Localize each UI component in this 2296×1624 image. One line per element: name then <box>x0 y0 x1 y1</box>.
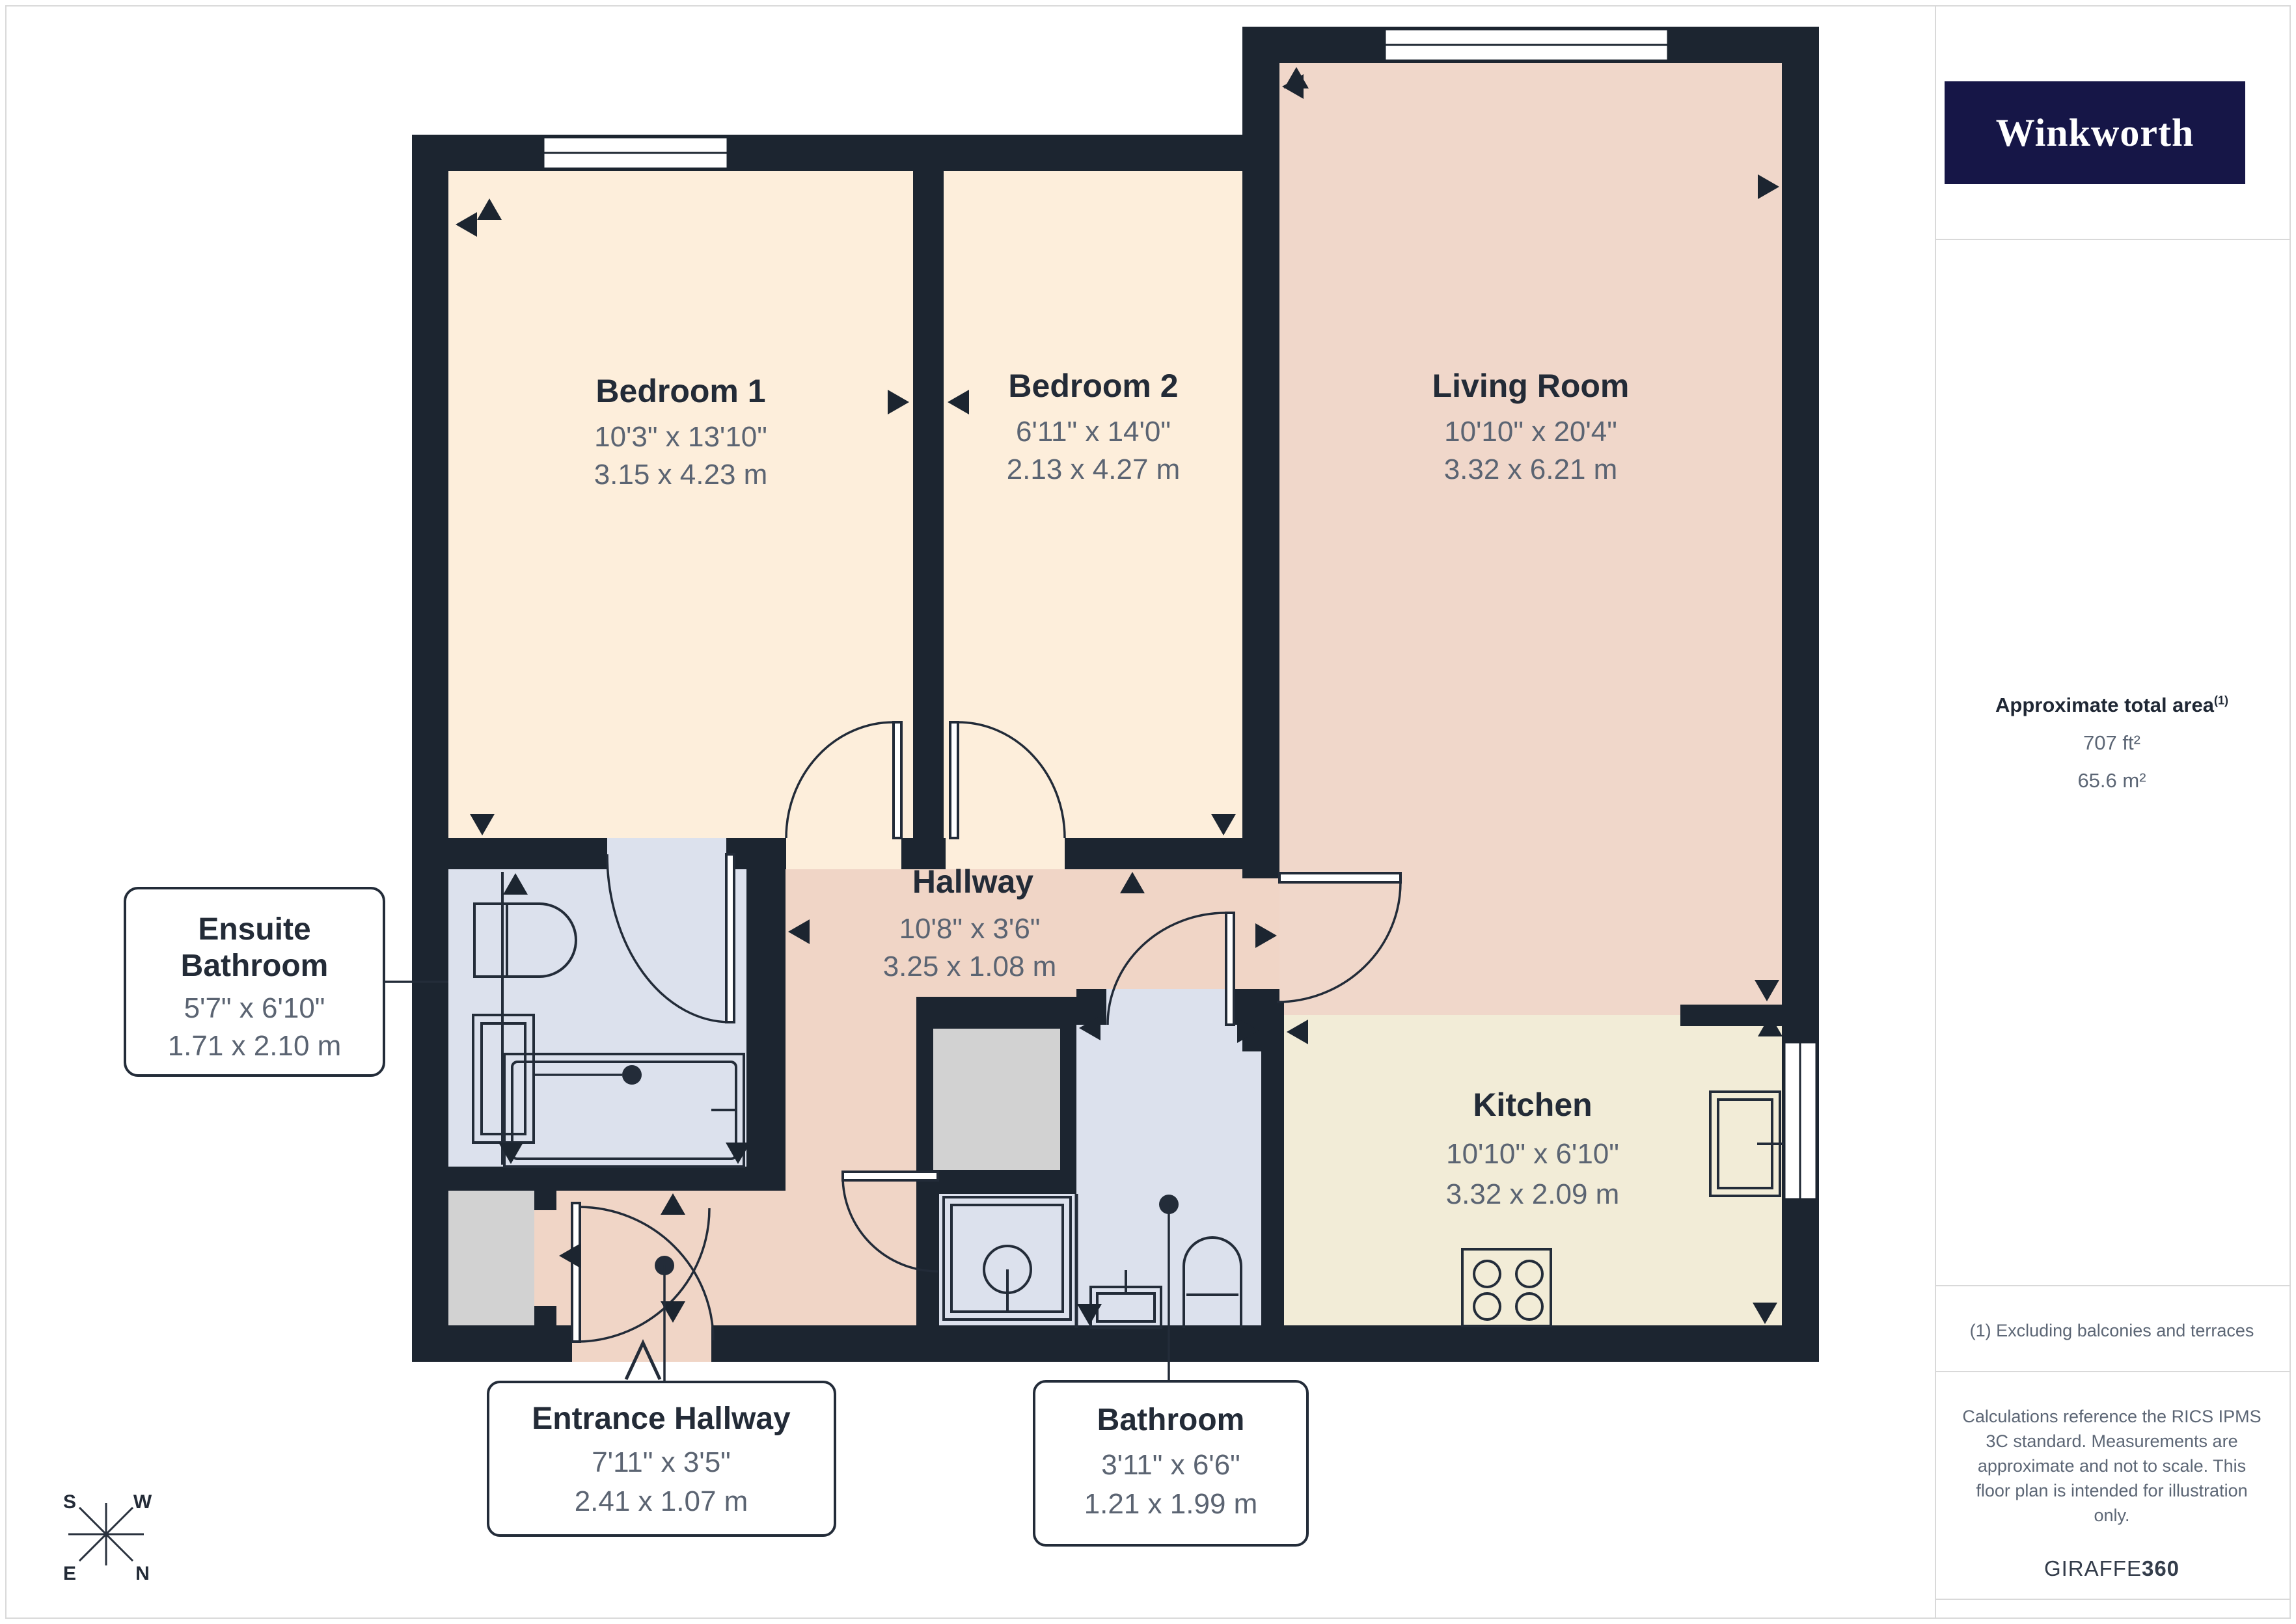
credit-prefix: GIRAFFE <box>2044 1556 2142 1580</box>
room-dims-metric: 3.25 x 1.08 m <box>883 951 1057 982</box>
callout-dims-metric: 1.21 x 1.99 m <box>1084 1488 1258 1520</box>
ensuite-point <box>622 1065 642 1085</box>
callout-title: Bathroom <box>181 949 329 983</box>
total-area-footnote-marker: (1) <box>2214 694 2228 707</box>
room-kitchen-floor <box>1284 1015 1782 1328</box>
total-area-block: Approximate total area(1) 707 ft² 65.6 m… <box>1943 694 2281 792</box>
room-dims-metric: 3.32 x 6.21 m <box>1444 453 1618 485</box>
room-title: Bedroom 2 <box>1008 368 1178 404</box>
entrance-mat <box>448 1191 534 1325</box>
callout-dims-imperial: 3'11" x 6'6" <box>1101 1449 1240 1481</box>
room-entrance-floor <box>534 1191 916 1325</box>
sidebar: Winkworth Approximate total area(1) 707 … <box>1935 7 2291 1617</box>
winkworth-logo: Winkworth <box>1945 81 2245 184</box>
room-title: Bedroom 1 <box>595 373 765 409</box>
disclaimer-line: Calculations reference the RICS IPMS <box>1952 1404 2272 1429</box>
disclaimer-text: Calculations reference the RICS IPMS 3C … <box>1952 1404 2272 1528</box>
bedroom1-threshold <box>786 838 901 869</box>
room-title: Living Room <box>1432 368 1630 404</box>
compass-s: S <box>63 1491 76 1513</box>
room-dims-imperial: 10'8" x 3'6" <box>899 913 1041 945</box>
compass-w: W <box>133 1491 152 1513</box>
room-dims-imperial: 10'10" x 20'4" <box>1444 416 1617 448</box>
hallway-stem-floor <box>786 997 916 1191</box>
total-area-label: Approximate total area <box>1995 694 2214 716</box>
bedroom1-window <box>543 137 728 169</box>
room-dims-imperial: 10'10" x 6'10" <box>1446 1138 1619 1170</box>
sidebar-divider <box>1936 1599 2291 1600</box>
room-dims-imperial: 10'3" x 13'10" <box>594 421 767 453</box>
callout-title: Ensuite <box>198 912 310 947</box>
compass-icon: S W E N <box>63 1491 152 1584</box>
room-title: Hallway <box>912 863 1033 900</box>
room-dims-metric: 3.15 x 4.23 m <box>594 459 768 491</box>
callout-dims-metric: 1.71 x 2.10 m <box>168 1030 342 1062</box>
compass-n: N <box>135 1563 150 1584</box>
total-area-imperial: 707 ft² <box>1943 731 2281 755</box>
disclaimer-line: only. <box>1952 1503 2272 1528</box>
bathroom-threshold <box>1106 989 1230 1025</box>
label-bedroom2: Bedroom 2 6'11" x 14'0" 2.13 x 4.27 m <box>1007 368 1181 485</box>
sidebar-divider <box>1936 239 2291 240</box>
compass-e: E <box>63 1563 76 1584</box>
ensuite-threshold <box>607 838 726 869</box>
room-title: Kitchen <box>1473 1087 1592 1123</box>
label-bedroom1: Bedroom 1 10'3" x 13'10" 3.15 x 4.23 m <box>594 373 768 491</box>
kitchen-window <box>1784 1042 1816 1199</box>
disclaimer-line: floor plan is intended for illustration <box>1952 1478 2272 1503</box>
floorplan: Bedroom 1 10'3" x 13'10" 3.15 x 4.23 m B… <box>0 0 1933 1624</box>
room-dims-metric: 2.13 x 4.27 m <box>1007 453 1181 485</box>
disclaimer-line: approximate and not to scale. This <box>1952 1454 2272 1478</box>
callout-title: Bathroom <box>1097 1403 1245 1437</box>
room-bedroom1-floor <box>448 171 913 838</box>
sidebar-divider <box>1936 1371 2291 1372</box>
balcony-footnote: (1) Excluding balconies and terraces <box>1943 1321 2281 1341</box>
callout-title: Entrance Hallway <box>532 1401 791 1436</box>
floorplan-page: Bedroom 1 10'3" x 13'10" 3.15 x 4.23 m B… <box>0 0 2296 1624</box>
brand-wordmark: Winkworth <box>1996 111 2194 156</box>
room-bedroom2-floor <box>944 171 1242 838</box>
callout-dims-metric: 2.41 x 1.07 m <box>575 1485 748 1517</box>
room-dims-imperial: 6'11" x 14'0" <box>1016 416 1171 448</box>
total-area-title: Approximate total area(1) <box>1943 694 2281 717</box>
label-living-room: Living Room 10'10" x 20'4" 3.32 x 6.21 m <box>1432 368 1630 485</box>
storage-closet <box>933 1029 1060 1170</box>
credit-suffix: 360 <box>2142 1556 2180 1580</box>
disclaimer-line: 3C standard. Measurements are <box>1952 1429 2272 1454</box>
callout-dims-imperial: 7'11" x 3'5" <box>592 1446 731 1478</box>
living-room-window <box>1385 29 1668 61</box>
sidebar-divider <box>1936 1285 2291 1286</box>
callout-ensuite: Ensuite Bathroom 5'7" x 6'10" 1.71 x 2.1… <box>125 888 448 1076</box>
total-area-metric: 65.6 m² <box>1943 769 2281 792</box>
giraffe360-credit: GIRAFFE360 <box>1943 1556 2281 1581</box>
room-dims-metric: 3.32 x 2.09 m <box>1446 1178 1620 1210</box>
callout-dims-imperial: 5'7" x 6'10" <box>184 992 325 1024</box>
